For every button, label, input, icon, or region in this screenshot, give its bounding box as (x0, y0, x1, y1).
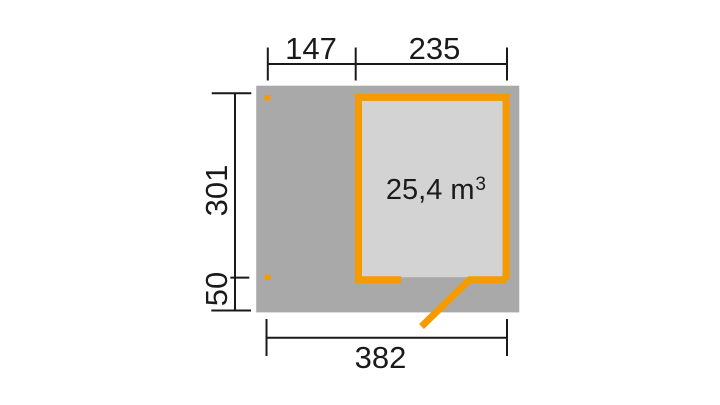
svg-text:382: 382 (355, 340, 407, 375)
svg-text:147: 147 (285, 31, 337, 66)
svg-text:235: 235 (409, 31, 461, 66)
svg-text:50: 50 (199, 272, 234, 306)
svg-text:25,4 m3: 25,4 m3 (386, 174, 486, 206)
svg-text:301: 301 (199, 165, 234, 217)
